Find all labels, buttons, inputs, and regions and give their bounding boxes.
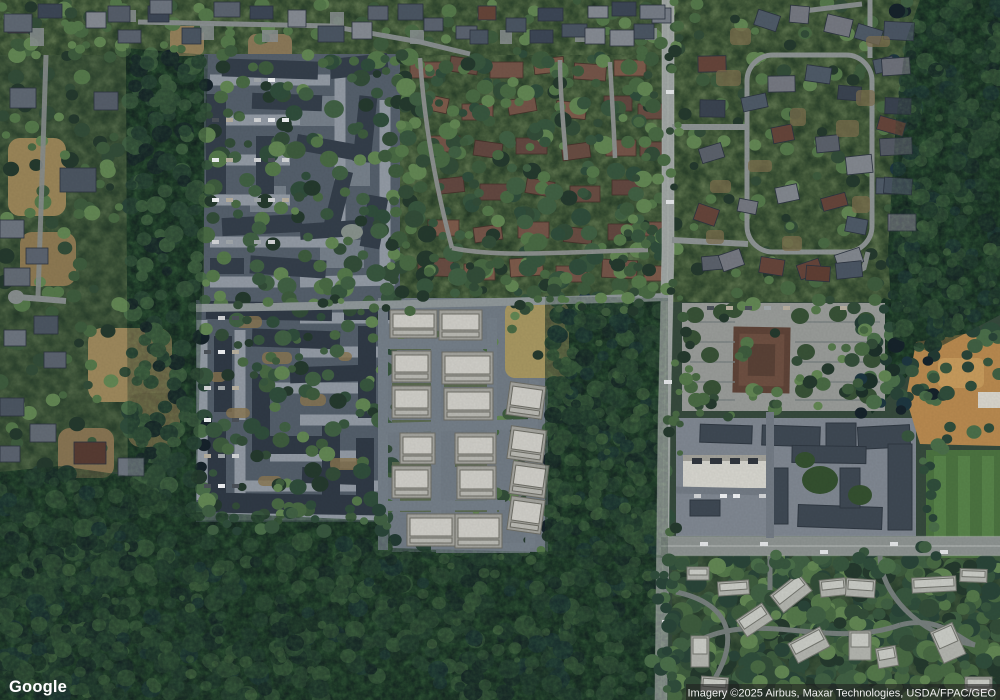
svg-text:Imagery ©2025 Airbus, Maxar Te: Imagery ©2025 Airbus, Maxar Technologies… [688, 688, 997, 700]
svg-text:Google: Google [9, 678, 67, 696]
